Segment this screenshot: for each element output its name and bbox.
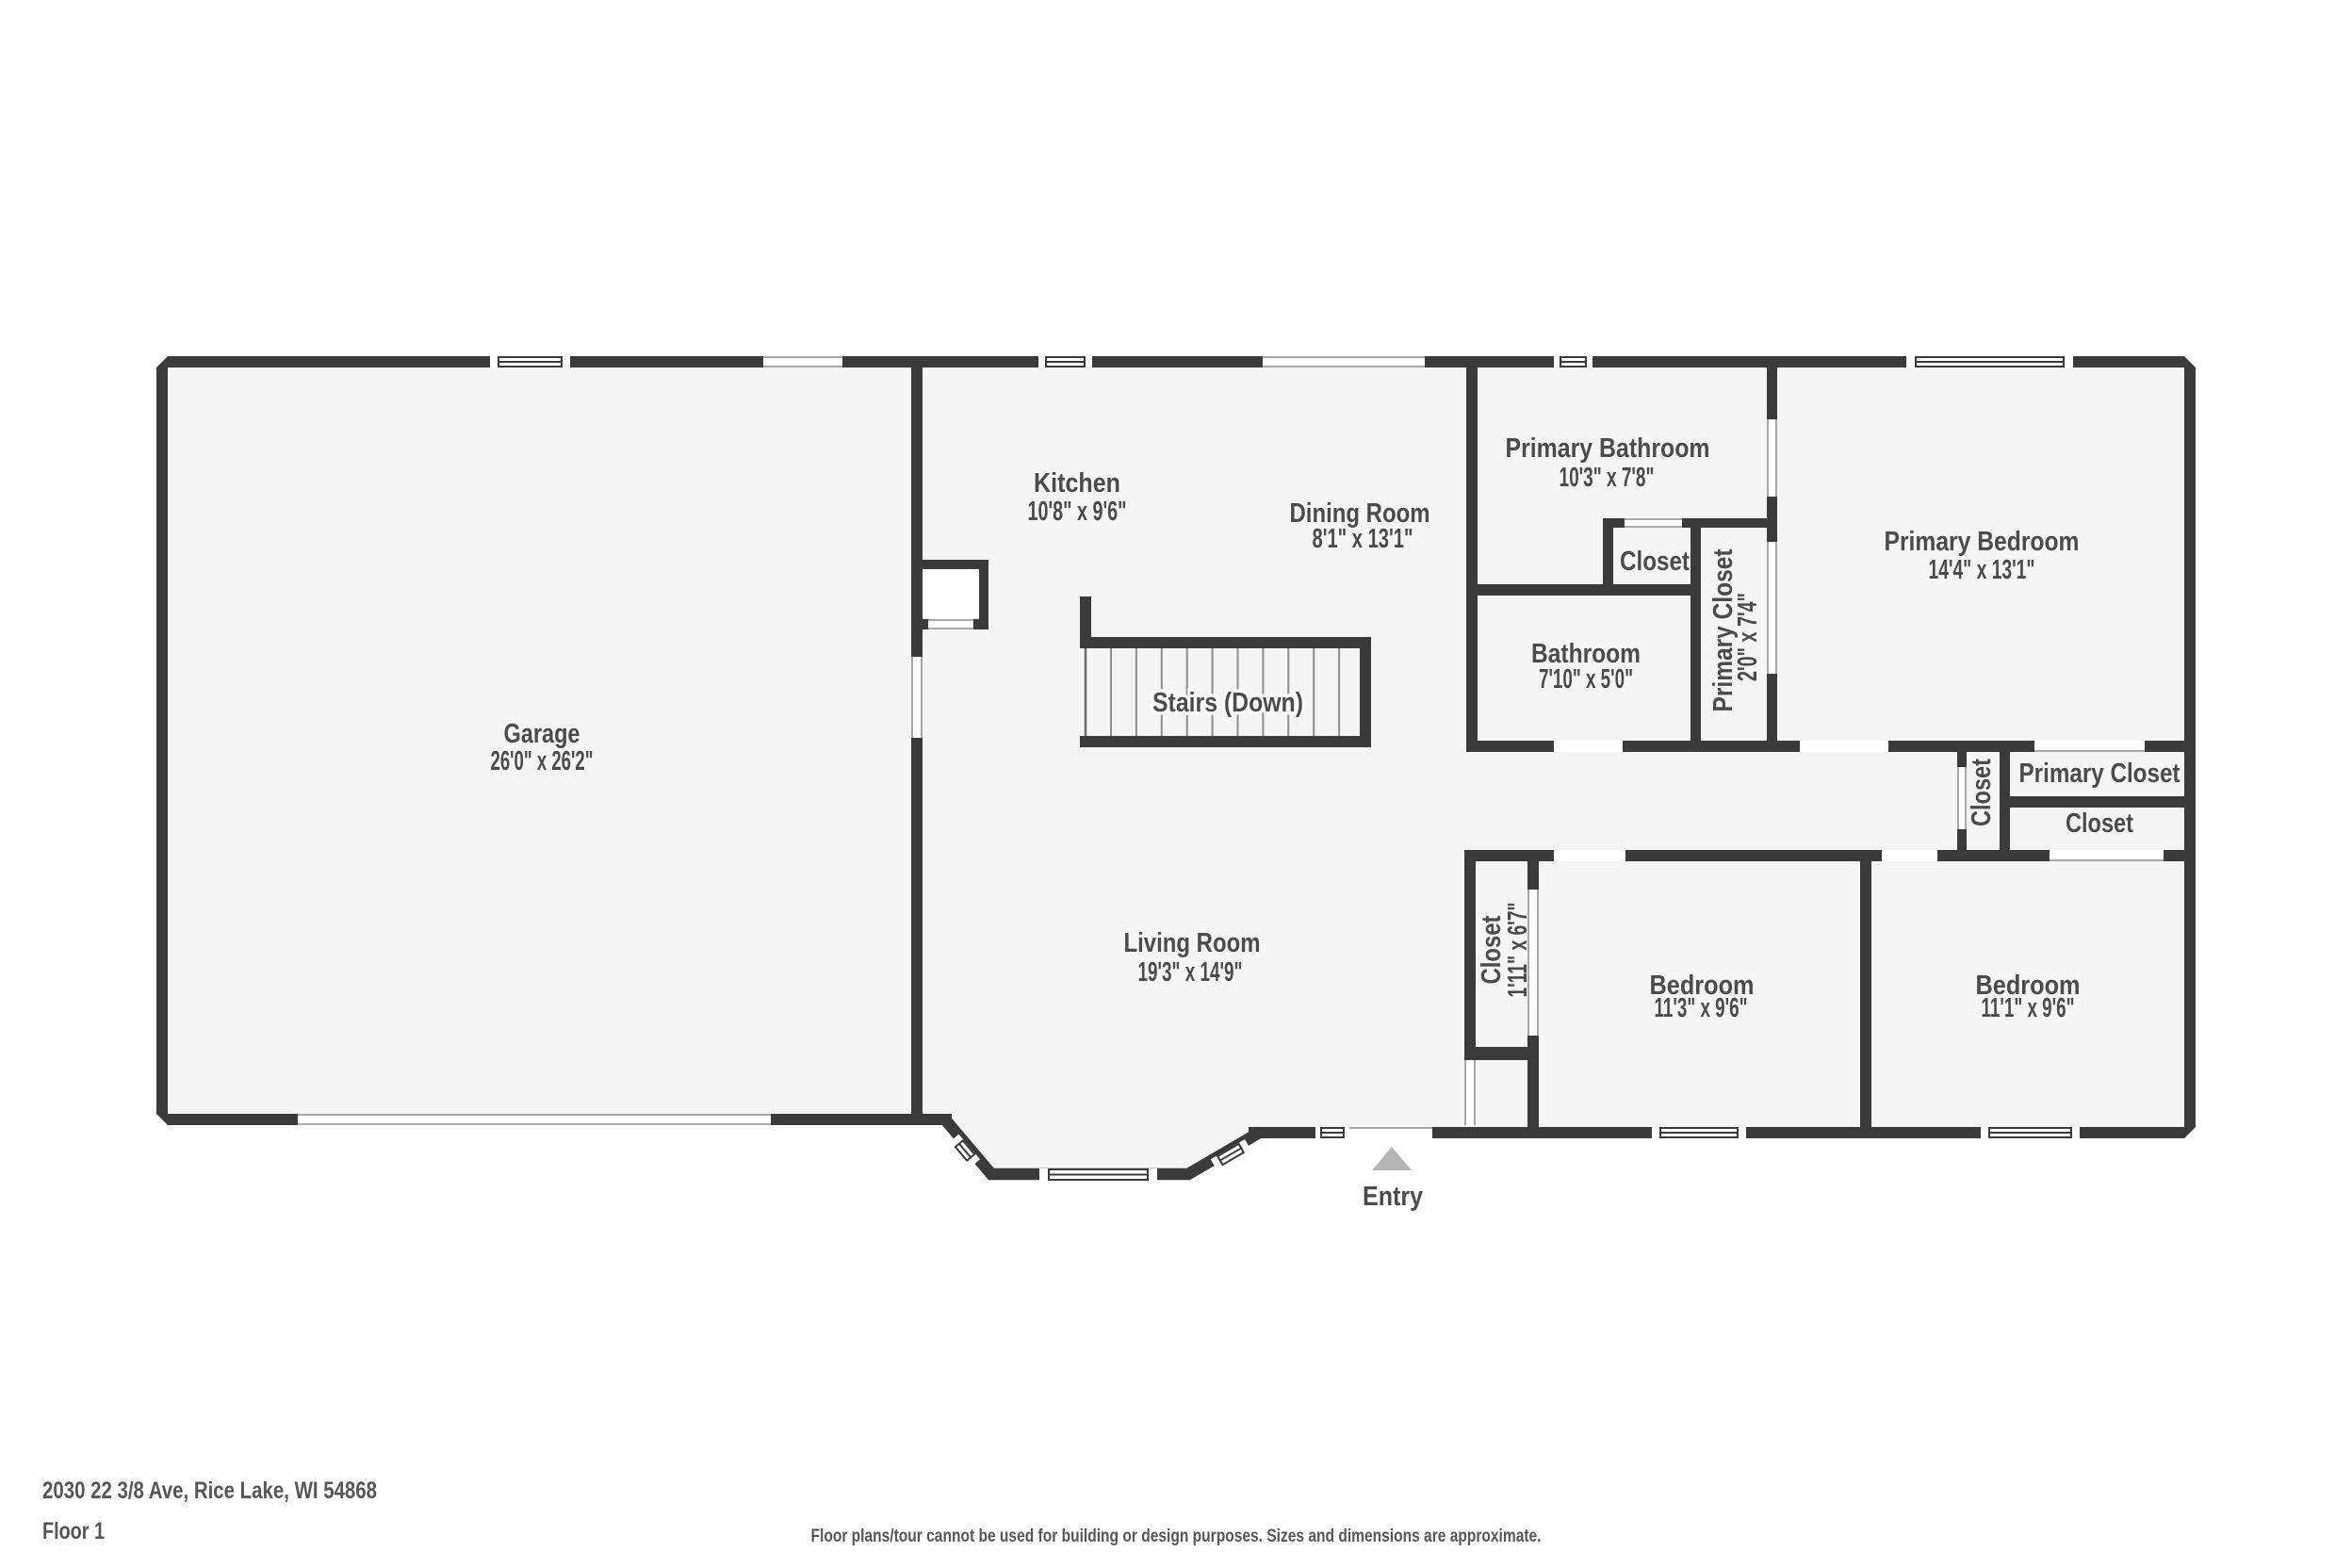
svg-text:Kitchen: Kitchen <box>1034 468 1120 498</box>
svg-text:Garage: Garage <box>504 719 580 749</box>
svg-text:Closet: Closet <box>1967 759 1997 826</box>
svg-text:Closet: Closet <box>1620 547 1690 577</box>
svg-text:Floor 1: Floor 1 <box>42 1518 105 1544</box>
svg-text:Living Room: Living Room <box>1124 928 1261 958</box>
svg-text:14'4" x 13'1": 14'4" x 13'1" <box>1929 555 2035 585</box>
svg-text:10'3" x 7'8": 10'3" x 7'8" <box>1560 463 1655 493</box>
svg-text:1'11" x 6'7": 1'11" x 6'7" <box>1503 903 1533 998</box>
svg-text:Primary Bedroom: Primary Bedroom <box>1885 527 2080 557</box>
svg-text:8'1" x 13'1": 8'1" x 13'1" <box>1313 524 1413 554</box>
svg-text:2'0" x 7'4": 2'0" x 7'4" <box>1733 593 1763 681</box>
svg-text:11'3" x 9'6": 11'3" x 9'6" <box>1655 993 1748 1023</box>
svg-text:26'0" x 26'2": 26'0" x 26'2" <box>491 746 594 776</box>
svg-text:Closet: Closet <box>2066 808 2133 839</box>
svg-text:Primary Closet: Primary Closet <box>2019 759 2180 789</box>
svg-text:2030 22 3/8 Ave, Rice Lake, WI: 2030 22 3/8 Ave, Rice Lake, WI 54868 <box>42 1478 377 1504</box>
svg-text:Stairs (Down): Stairs (Down) <box>1152 688 1303 718</box>
svg-text:10'8" x 9'6": 10'8" x 9'6" <box>1028 497 1127 527</box>
svg-text:Floor plans/tour cannot be use: Floor plans/tour cannot be used for buil… <box>811 1527 1542 1546</box>
svg-text:7'10" x 5'0": 7'10" x 5'0" <box>1539 664 1633 694</box>
svg-text:11'1" x 9'6": 11'1" x 9'6" <box>1982 993 2075 1023</box>
svg-text:Primary Bathroom: Primary Bathroom <box>1506 433 1710 464</box>
svg-text:19'3" x 14'9": 19'3" x 14'9" <box>1138 957 1243 988</box>
svg-text:Entry: Entry <box>1363 1182 1423 1212</box>
